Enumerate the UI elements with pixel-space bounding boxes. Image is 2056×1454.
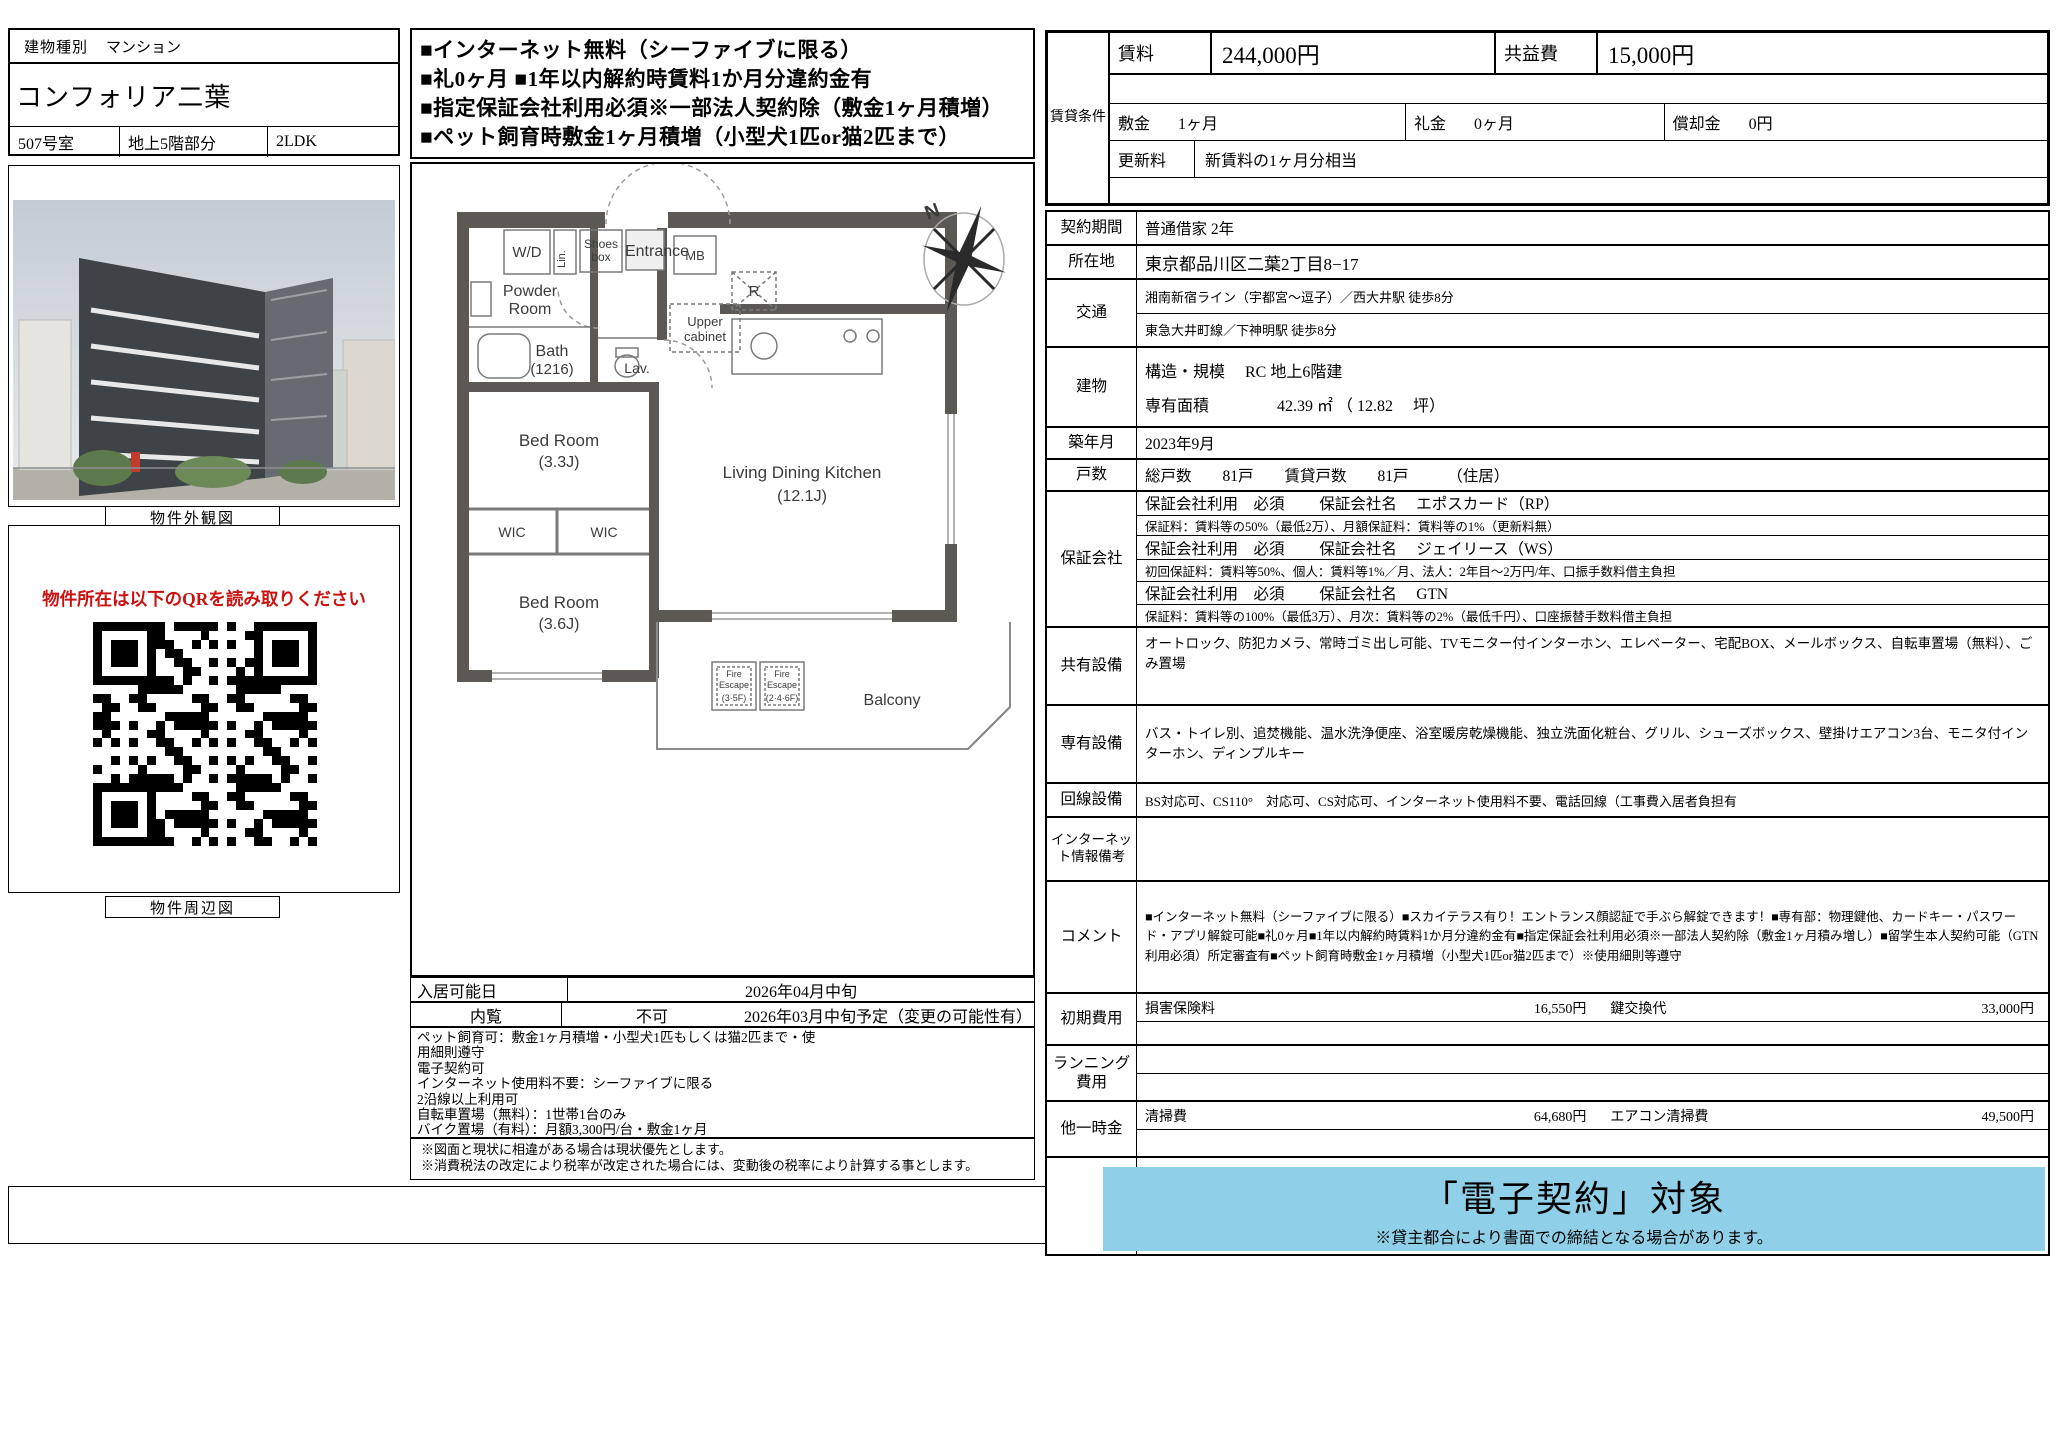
- key-money-label: 礼金: [1414, 110, 1446, 134]
- location-row: 所在地 東京都品川区二葉2丁目8−17: [1047, 246, 2048, 280]
- highlight-line: ■礼0ヶ月 ■1年以内解約時賃料1か月分違約金有: [420, 65, 1025, 94]
- viewing-row: 内覧 不可 2026年03月中旬予定（変更の可能性有）: [410, 1002, 1035, 1027]
- deposit-value: 1ヶ月: [1178, 110, 1218, 134]
- building-type-label: 建物種別: [10, 36, 98, 57]
- floor-plan: N W/D Lin. Shoes box Entrance MB R Powde…: [412, 164, 1032, 972]
- condition-line: 2沿線以上利用可: [417, 1092, 1028, 1107]
- building-type-value: マンション: [98, 36, 181, 57]
- built-row: 築年月 2023年9月: [1047, 428, 2048, 460]
- guarantor-line: 保証会社利用 必須 保証会社名 ジェイリース（WS）: [1137, 536, 2048, 560]
- cleaning-fee-label: 清掃費: [1145, 1106, 1414, 1126]
- svg-text:(2·4·6F): (2·4·6F): [766, 693, 799, 703]
- internet-note-label: インターネット情報備考: [1047, 818, 1137, 880]
- svg-text:Lin.: Lin.: [556, 250, 568, 268]
- private-facilities-value: バス・トイレ別、追焚機能、温水洗浄便座、浴室暖房乾燥機能、独立洗面化粧台、グリル…: [1145, 724, 2040, 763]
- exterior-photo: [13, 200, 395, 500]
- units-label: 戸数: [1047, 460, 1137, 490]
- highlight-line: ■インターネット無料（シーファイブに限る）: [420, 36, 1025, 65]
- guarantor-line: 保証会社利用 必須 保証会社名 GTN: [1137, 582, 2048, 606]
- movein-value: 2026年04月中旬: [568, 978, 1034, 1001]
- building-area: 専有面積 42.39 ㎡ （ 12.82 坪）: [1145, 392, 2040, 416]
- details-table: 契約期間 普通借家 2年 所在地 東京都品川区二葉2丁目8−17 交通 湘南新宿…: [1045, 210, 2050, 1256]
- rent-table: 賃貸条件 賃料 244,000円 共益費 15,000円 敷金 1ヶ月 礼金 0…: [1045, 30, 2050, 206]
- contract-value: 普通借家 2年: [1145, 217, 2040, 239]
- conditions-box: ペット飼育可：敷金1ヶ月積増・小型犬1匹もしくは猫2匹まで・使 用細則遵守 電子…: [410, 1027, 1035, 1138]
- svg-text:Bed Room: Bed Room: [519, 431, 599, 450]
- renewal-value: 新賃料の1ヶ月分相当: [1195, 141, 2047, 177]
- svg-text:Bed Room: Bed Room: [519, 593, 599, 612]
- svg-text:Escape: Escape: [767, 680, 797, 690]
- rent-row: 賃料 244,000円 共益費 15,000円: [1110, 33, 2047, 75]
- e-contract-title: 「電子契約」対象: [1422, 1170, 1726, 1222]
- location-label: 所在地: [1047, 246, 1137, 278]
- qr-notice-text: 物件所在は以下のQRを読み取りください: [9, 586, 399, 611]
- floor-position: 地上5階部分: [120, 127, 268, 157]
- property-type-table: 建物種別 マンション コンフォリア二葉 507号室 地上5階部分 2LDK: [8, 28, 400, 156]
- condition-line: バイク置場（有料）：月額3,300円/台・敷金1ヶ月: [417, 1122, 1028, 1137]
- condition-line: インターネット使用料不要：シーファイブに限る: [417, 1076, 1028, 1091]
- running-cost-row: ランニング費用: [1047, 1046, 2048, 1102]
- condition-line: ペット飼育可：敷金1ヶ月積増・小型犬1匹もしくは猫2匹まで・使: [417, 1030, 1028, 1045]
- other-cost-label: 他一時金: [1047, 1102, 1137, 1156]
- guarantor-line: 保証会社利用 必須 保証会社名 エポスカード（RP）: [1137, 492, 2048, 516]
- rent-group-label: 賃貸条件: [1048, 33, 1110, 203]
- svg-text:(3·5F): (3·5F): [722, 693, 747, 703]
- comment-row: コメント ■インターネット無料（シーファイブに限る）■スカイテラス有り！エントラ…: [1047, 882, 2048, 994]
- line-equipment-row: 回線設備 BS対応可、CS110° 対応可、CS対応可、インターネット使用料不要…: [1047, 784, 2048, 818]
- location-value: 東京都品川区二葉2丁目8−17: [1145, 250, 2040, 275]
- building-name: コンフォリア二葉: [10, 64, 398, 127]
- line-equipment-value: BS対応可、CS110° 対応可、CS対応可、インターネット使用料不要、電話回線…: [1145, 791, 2040, 810]
- insurance-label: 損害保険料: [1145, 998, 1414, 1018]
- svg-text:Fire: Fire: [726, 669, 742, 679]
- viewing-note: 2026年03月中旬予定（変更の可能性有）: [742, 1003, 1034, 1026]
- movein-label: 入居可能日: [411, 978, 568, 1001]
- line-equipment-label: 回線設備: [1047, 784, 1137, 816]
- svg-text:Powder: Powder: [503, 283, 558, 300]
- renewal-row: 更新料 新賃料の1ヶ月分相当: [1110, 141, 2047, 178]
- amortization-label: 償却金: [1673, 110, 1721, 134]
- svg-text:(3.3J): (3.3J): [539, 454, 580, 471]
- key-exchange-value: 33,000円: [1807, 998, 2040, 1018]
- building-structure: 構造・規模 RC 地上6階建: [1145, 358, 2040, 382]
- building-label: 建物: [1047, 348, 1137, 426]
- aircon-cleaning-value: 49,500円: [1807, 1106, 2040, 1126]
- contract-label: 契約期間: [1047, 212, 1137, 244]
- shared-facilities-value: オートロック、防犯カメラ、常時ゴミ出し可能、TVモニター付インターホン、エレベー…: [1145, 634, 2040, 673]
- map-caption: 物件周辺図: [105, 896, 280, 918]
- guarantor-line: 保証料：賃料等の100%（最低3万）、月次：賃料等の2%（最低千円）、口座振替手…: [1137, 605, 2048, 626]
- aircon-cleaning-label: エアコン清掃費: [1610, 1106, 1807, 1126]
- access-line2: 東急大井町線／下神明駅 徒歩8分: [1137, 314, 2048, 347]
- svg-text:W/D: W/D: [512, 244, 541, 261]
- room-info-row: 507号室 地上5階部分 2LDK: [10, 127, 398, 157]
- guarantor-line: 保証料：賃料等の50%（最低2万）、月額保証料：賃料等の1%（更新料無）: [1137, 516, 2048, 537]
- svg-text:Fire: Fire: [774, 669, 790, 679]
- building-row: 建物 構造・規模 RC 地上6階建 専有面積 42.39 ㎡ （ 12.82 坪…: [1047, 348, 2048, 428]
- fee-label: 共益費: [1496, 33, 1598, 73]
- compass-icon: N: [920, 199, 1007, 314]
- deposit-row: 敷金 1ヶ月 礼金 0ヶ月 償却金 0円: [1110, 104, 2047, 141]
- internet-note-row: インターネット情報備考: [1047, 818, 2048, 882]
- built-value: 2023年9月: [1145, 432, 2040, 454]
- condition-line: 自転車置場（無料）：1世帯1台のみ: [417, 1107, 1028, 1122]
- shared-facilities-row: 共有設備 オートロック、防犯カメラ、常時ゴミ出し可能、TVモニター付インターホン…: [1047, 628, 2048, 706]
- note-line: ※図面と現状に相違がある場合は現状優先とします。: [421, 1142, 1028, 1158]
- svg-text:Shoes: Shoes: [584, 237, 618, 251]
- units-row: 戸数 総戸数 81戸 賃貸戸数 81戸 （住居）: [1047, 460, 2048, 492]
- movein-row: 入居可能日 2026年04月中旬: [410, 977, 1035, 1002]
- svg-text:Balcony: Balcony: [864, 692, 921, 709]
- initial-cost-row: 初期費用 損害保険料 16,550円 鍵交換代 33,000円: [1047, 994, 2048, 1046]
- access-row: 交通 湘南新宿ライン（宇都宮～逗子）／西大井駅 徒歩8分 東急大井町線／下神明駅…: [1047, 280, 2048, 348]
- room-number: 507号室: [10, 127, 120, 157]
- svg-text:MB: MB: [685, 248, 705, 263]
- rent-label: 賃料: [1110, 33, 1212, 73]
- cleaning-fee-value: 64,680円: [1414, 1106, 1611, 1126]
- highlight-line: ■指定保証会社利用必須※一部法人契約除（敷金1ヶ月積増）: [420, 94, 1025, 123]
- svg-text:WIC: WIC: [590, 524, 617, 540]
- svg-text:(12.1J): (12.1J): [777, 488, 827, 505]
- rent-value: 244,000円: [1212, 33, 1496, 73]
- rent-empty-row: [1110, 75, 2047, 104]
- property-flyer: 建物種別 マンション コンフォリア二葉 507号室 地上5階部分 2LDK: [0, 0, 2056, 1454]
- contract-row: 契約期間 普通借家 2年: [1047, 212, 2048, 246]
- svg-text:(3.6J): (3.6J): [539, 616, 580, 633]
- condition-line: 用細則遵守: [417, 1045, 1028, 1060]
- renewal-label: 更新料: [1110, 141, 1195, 177]
- other-cost-row: 他一時金 清掃費 64,680円 エアコン清掃費 49,500円: [1047, 1102, 2048, 1158]
- deposit-label: 敷金: [1118, 110, 1150, 134]
- e-contract-banner: 「電子契約」対象 ※貸主都合により書面での締結となる場合があります。: [1103, 1167, 2045, 1251]
- comment-label: コメント: [1047, 882, 1137, 992]
- private-facilities-row: 専有設備 バス・トイレ別、追焚機能、温水洗浄便座、浴室暖房乾燥機能、独立洗面化粧…: [1047, 706, 2048, 784]
- layout-type: 2LDK: [268, 127, 398, 157]
- highlights-box: ■インターネット無料（シーファイブに限る） ■礼0ヶ月 ■1年以内解約時賃料1か…: [410, 28, 1035, 159]
- comment-value: ■インターネット無料（シーファイブに限る）■スカイテラス有り！エントランス顔認証…: [1145, 908, 2040, 966]
- access-line1: 湘南新宿ライン（宇都宮～逗子）／西大井駅 徒歩8分: [1137, 280, 2048, 314]
- svg-text:box: box: [591, 250, 610, 264]
- built-label: 築年月: [1047, 428, 1137, 458]
- insurance-value: 16,550円: [1414, 998, 1611, 1018]
- highlight-line: ■ペット飼育時敷金1ヶ月積増（小型犬1匹or猫2匹まで）: [420, 123, 1025, 152]
- condition-line: 電子契約可: [417, 1061, 1028, 1076]
- qr-section: 物件所在は以下のQRを読み取りください: [8, 525, 400, 893]
- guarantor-label: 保証会社: [1047, 492, 1137, 626]
- key-money-value: 0ヶ月: [1474, 110, 1514, 134]
- svg-text:WIC: WIC: [498, 524, 525, 540]
- svg-text:Upper: Upper: [687, 314, 723, 329]
- svg-text:Lav.: Lav.: [624, 360, 649, 376]
- initial-cost-label: 初期費用: [1047, 994, 1137, 1044]
- private-facilities-label: 専有設備: [1047, 706, 1137, 782]
- qr-code: [93, 622, 317, 846]
- key-exchange-label: 鍵交換代: [1610, 998, 1807, 1018]
- exterior-photo-frame: [8, 165, 400, 507]
- running-cost-label: ランニング費用: [1047, 1046, 1137, 1100]
- viewing-value: 不可: [562, 1003, 742, 1026]
- guarantor-row: 保証会社 保証会社利用 必須 保証会社名 エポスカード（RP） 保証料：賃料等の…: [1047, 492, 2048, 628]
- shared-facilities-label: 共有設備: [1047, 628, 1137, 704]
- viewing-label: 内覧: [411, 1003, 562, 1026]
- svg-text:R: R: [749, 283, 760, 300]
- fee-value: 15,000円: [1598, 33, 2047, 73]
- amortization-value: 0円: [1749, 110, 1773, 134]
- guarantor-line: 初回保証料：賃料等50%、個人：賃料等1%／月、法人：2年目～2万円/年、口振手…: [1137, 560, 2048, 582]
- units-value: 総戸数 81戸 賃貸戸数 81戸 （住居）: [1145, 464, 2040, 486]
- svg-text:Bath: Bath: [536, 343, 569, 360]
- note-line: ※消費税法の改定により税率が改定された場合には、変動後の税率により計算する事とし…: [421, 1158, 1028, 1174]
- floor-plan-box: N W/D Lin. Shoes box Entrance MB R Powde…: [410, 162, 1035, 977]
- svg-text:Entrance: Entrance: [625, 243, 689, 260]
- access-label: 交通: [1047, 280, 1137, 346]
- e-contract-row: 「電子契約」対象 ※貸主都合により書面での締結となる場合があります。: [1047, 1158, 2048, 1254]
- svg-text:(1216): (1216): [530, 361, 573, 378]
- svg-text:Escape: Escape: [719, 680, 749, 690]
- svg-text:Room: Room: [509, 301, 552, 318]
- e-contract-note: ※貸主都合により書面での締結となる場合があります。: [1375, 1224, 1773, 1248]
- building-type-row: 建物種別 マンション: [10, 30, 398, 64]
- notes-box: ※図面と現状に相違がある場合は現状優先とします。 ※消費税法の改定により税率が改…: [410, 1138, 1035, 1180]
- svg-text:Living Dining Kitchen: Living Dining Kitchen: [723, 463, 882, 482]
- svg-text:cabinet: cabinet: [684, 329, 726, 344]
